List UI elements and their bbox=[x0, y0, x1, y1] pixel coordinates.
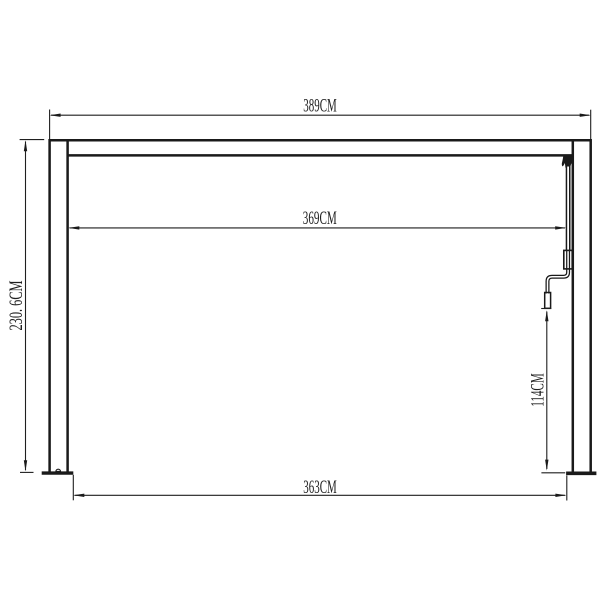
svg-text:369CM: 369CM bbox=[303, 208, 337, 229]
svg-text:230. 6CM: 230. 6CM bbox=[6, 280, 27, 330]
svg-text:363CM: 363CM bbox=[303, 477, 337, 498]
svg-text:389CM: 389CM bbox=[303, 96, 337, 117]
svg-text:114CM: 114CM bbox=[528, 373, 549, 407]
